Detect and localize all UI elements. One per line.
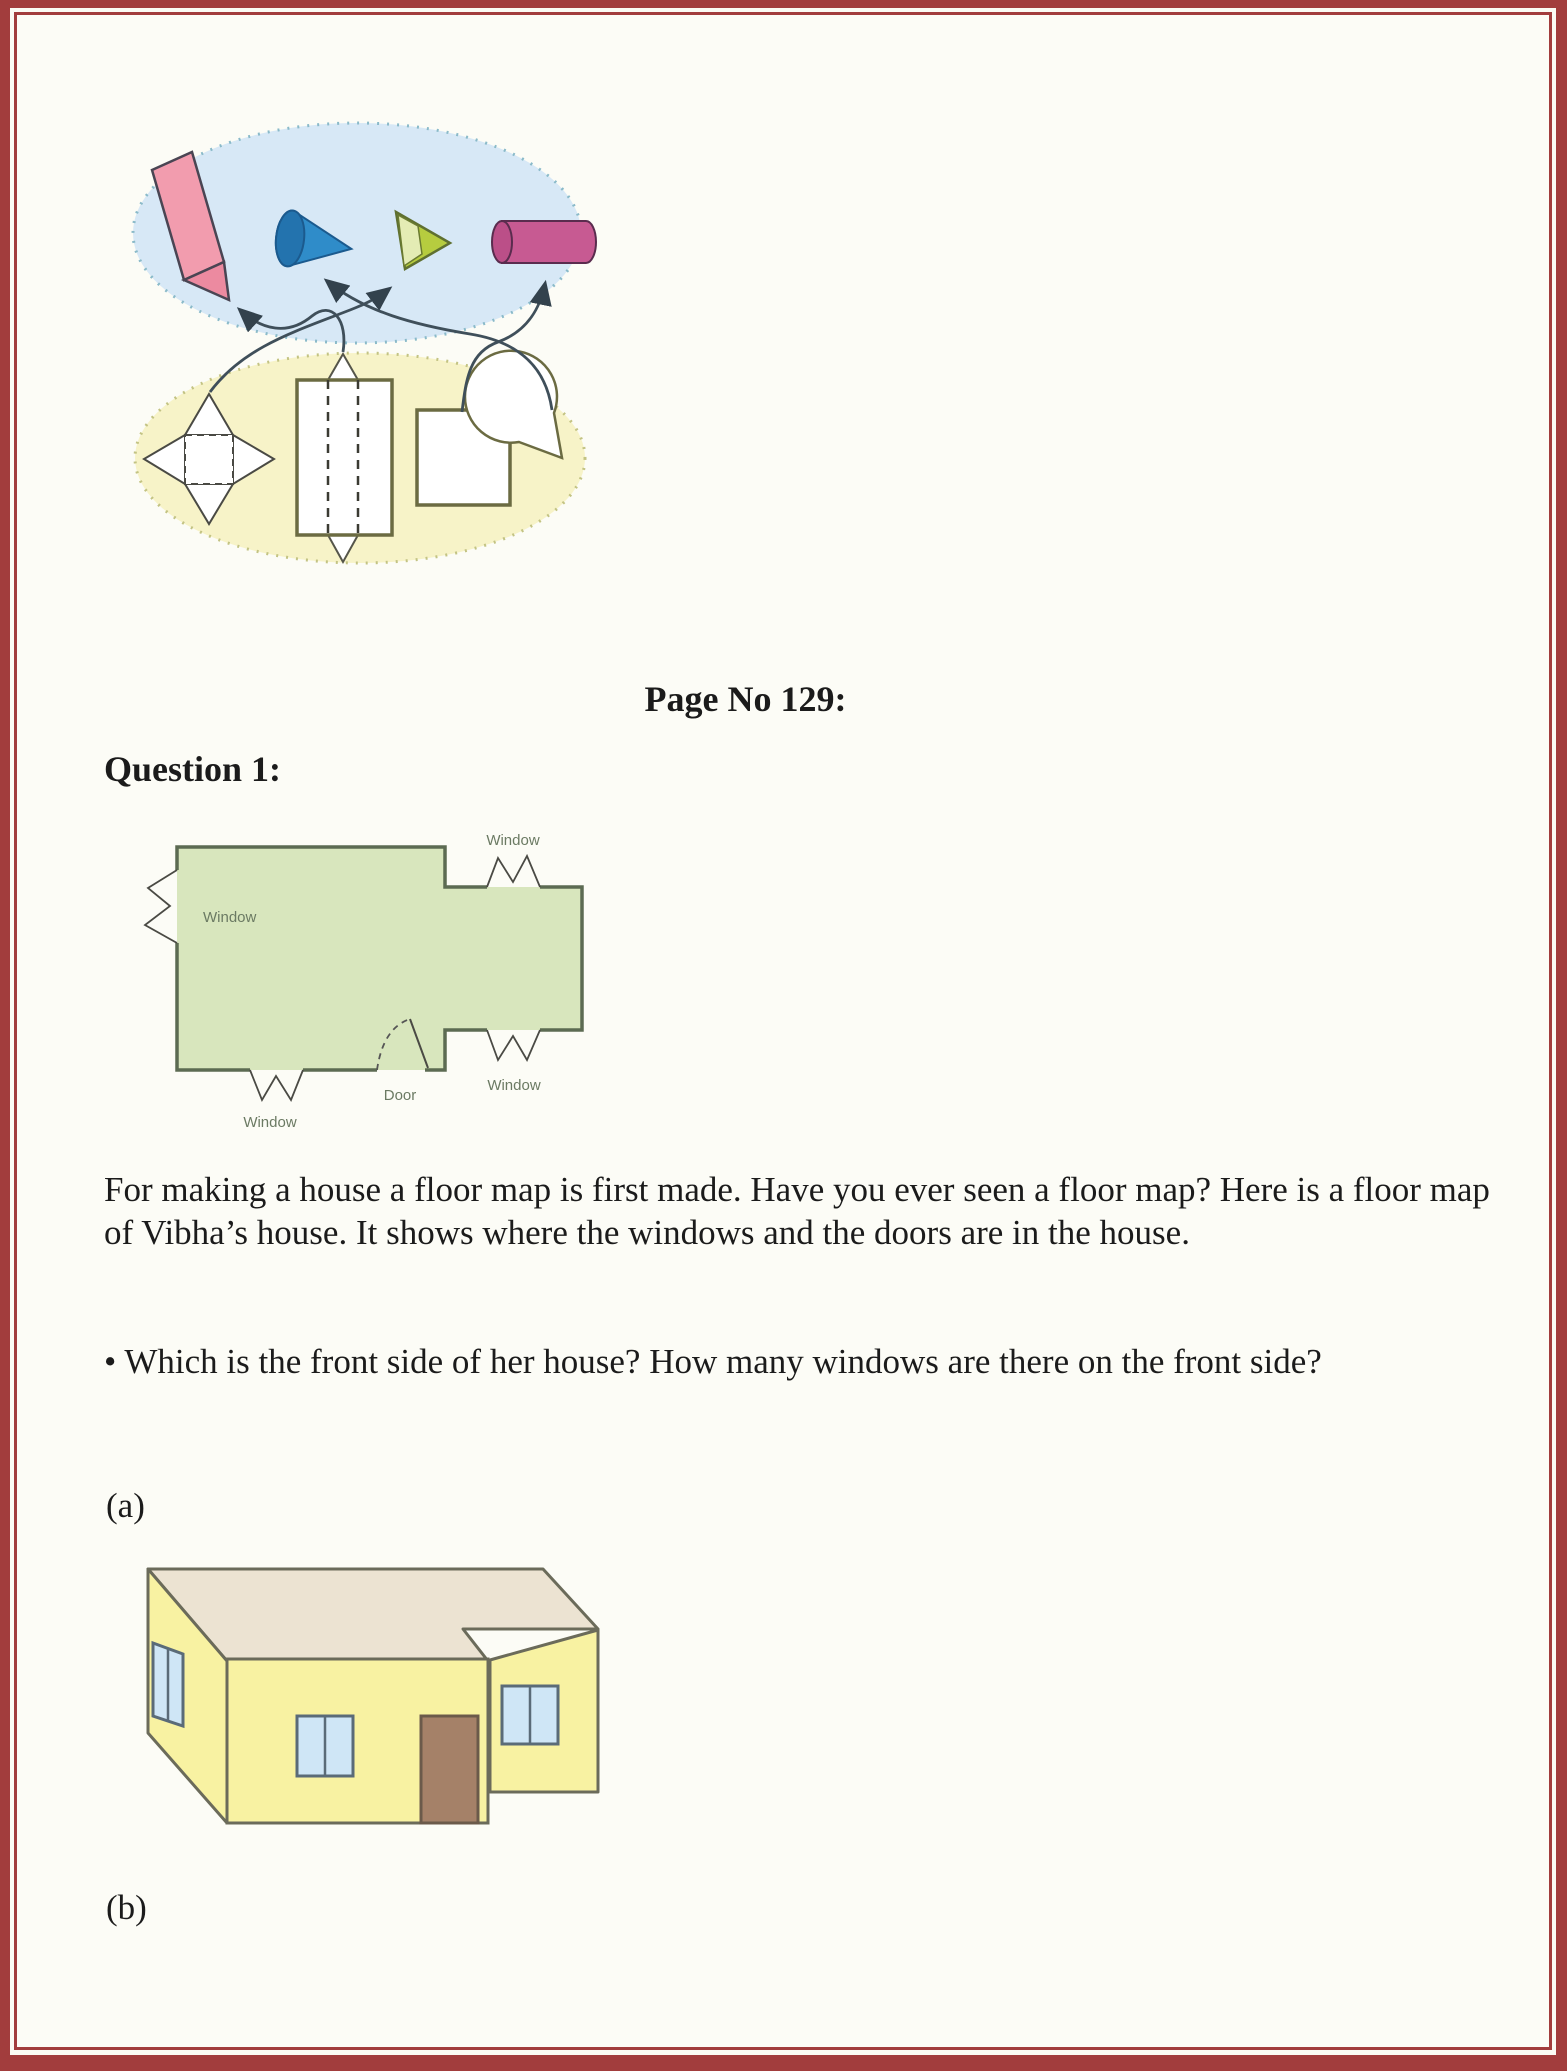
window-label-bottom-right: Window	[487, 1077, 541, 1094]
question-bullet: • Which is the front side of her house? …	[104, 1340, 1494, 1383]
document-page: Page No 129: Question 1: For making a ho…	[0, 0, 1567, 2071]
option-b-label: (b)	[106, 1888, 147, 1928]
question-label: Question 1:	[104, 748, 281, 790]
cylinder-shape	[492, 221, 596, 263]
shape-matching-figure	[90, 85, 650, 595]
left-window	[153, 1643, 183, 1726]
top-right-window-symbol	[487, 856, 540, 887]
window-label-left: Window	[203, 909, 257, 926]
door-label: Door	[384, 1087, 417, 1104]
floor-map-area	[177, 847, 582, 1070]
prism-net-shape	[297, 354, 392, 562]
window-label-bottom-left: Window	[243, 1114, 297, 1131]
floor-map-figure: Window Window Window Door Window	[120, 810, 630, 1150]
window-label-top-right: Window	[486, 832, 540, 849]
question-paragraph: For making a house a floor map is first …	[104, 1168, 1494, 1254]
option-a-label: (a)	[106, 1486, 145, 1526]
house-figure	[130, 1550, 650, 1840]
extension-window	[502, 1686, 558, 1744]
front-window	[297, 1716, 353, 1776]
bottom-left-window-symbol	[250, 1070, 303, 1100]
page-heading: Page No 129:	[0, 678, 1529, 720]
front-door	[421, 1716, 478, 1823]
left-window-symbol	[145, 870, 177, 943]
bottom-right-window-symbol	[487, 1030, 540, 1060]
